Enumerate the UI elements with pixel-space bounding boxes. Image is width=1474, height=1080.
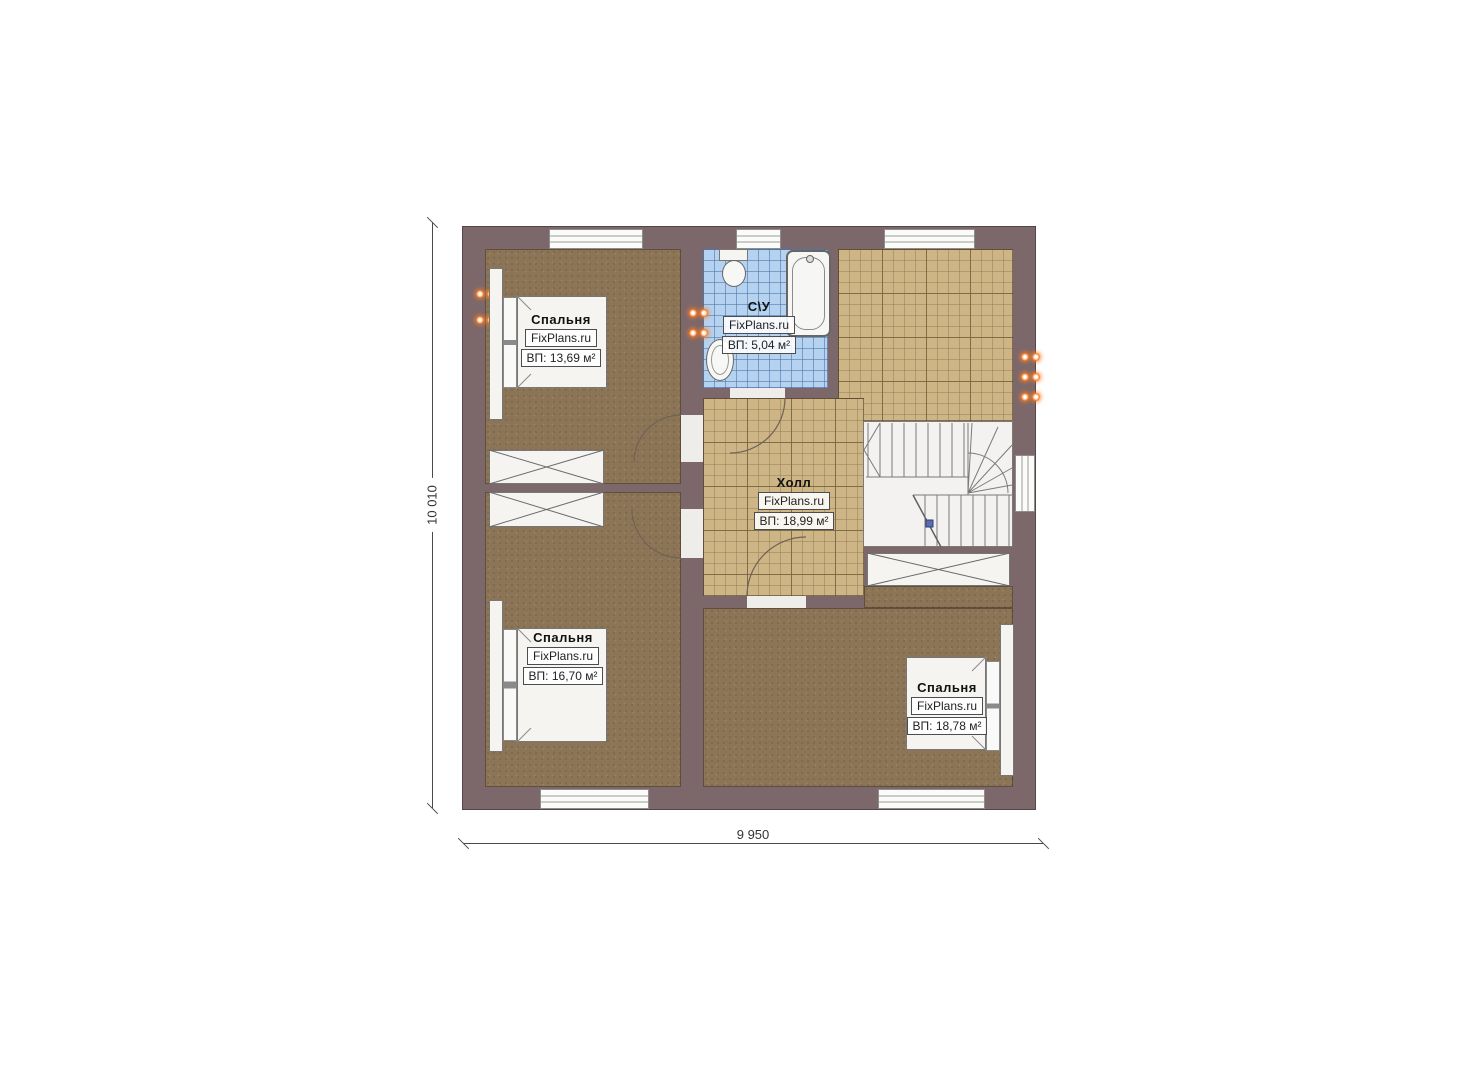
window-bottom-1 [540,789,649,809]
watermark: FixPlans.ru [527,647,599,665]
wardrobe [489,492,604,527]
room-label-bathroom: С\У FixPlans.ru ВП: 5,04 м² [725,299,793,354]
socket-icon [689,309,708,317]
bathtub-faucet [806,255,814,263]
room-bedroom-bottom-right-floor-upper [864,586,1013,608]
room-name: С\У [748,299,771,314]
window-top-1 [549,229,643,249]
room-label-bedroom-bottom-right: Спальня FixPlans.ru ВП: 18,78 м² [901,680,993,735]
room-label-bedroom-bottom-left: Спальня FixPlans.ru ВП: 16,70 м² [515,630,611,685]
room-area: ВП: 18,78 м² [907,717,988,735]
watermark: FixPlans.ru [525,329,597,347]
room-area: ВП: 18,99 м² [754,512,835,530]
watermark: FixPlans.ru [758,492,830,510]
headboard-shelf [1000,624,1014,776]
window-top-2 [736,229,781,249]
watermark: FixPlans.ru [911,697,983,715]
room-name: Спальня [531,312,591,327]
headboard-shelf [489,268,503,420]
door-opening-bedroom-bottom-left [681,509,703,558]
room-name: Спальня [533,630,593,645]
room-area: ВП: 16,70 м² [523,667,604,685]
door-opening-bathroom [730,388,785,398]
room-name: Спальня [917,680,977,695]
room-label-bedroom-top-left: Спальня FixPlans.ru ВП: 13,69 м² [513,312,609,367]
socket-icon [1021,353,1040,361]
window-bottom-2 [878,789,985,809]
watermark: FixPlans.ru [723,316,795,334]
door-opening-bedroom-bottom-right [747,596,806,608]
socket-icon [1021,373,1040,381]
socket-icon [689,329,708,337]
toilet-bowl [722,260,746,287]
window-top-3 [884,229,975,249]
room-area: ВП: 13,69 м² [521,349,602,367]
hall-upper-tile-floor [838,249,1013,421]
horizontal-dimension-line [463,843,1043,844]
page: { "plan": { "watermark": "FixPlans.ru", … [0,0,1474,1080]
wardrobe [489,450,604,484]
room-area: ВП: 5,04 м² [722,336,796,354]
room-label-hall: Холл FixPlans.ru ВП: 18,99 м² [746,475,842,530]
bathtub-basin [792,257,825,330]
headboard-shelf [489,600,503,752]
room-name: Холл [777,475,812,490]
staircase-zone [863,421,1013,547]
floor-plan: Спальня FixPlans.ru ВП: 13,69 м² С\У Fix… [463,227,1035,809]
door-opening-bedroom-top-left [681,415,703,462]
wardrobe [867,553,1010,586]
horizontal-dimension-label: 9 950 [730,827,777,842]
socket-icon [1021,393,1040,401]
window-right [1015,455,1035,512]
vertical-dimension-label: 10 010 [425,478,440,532]
